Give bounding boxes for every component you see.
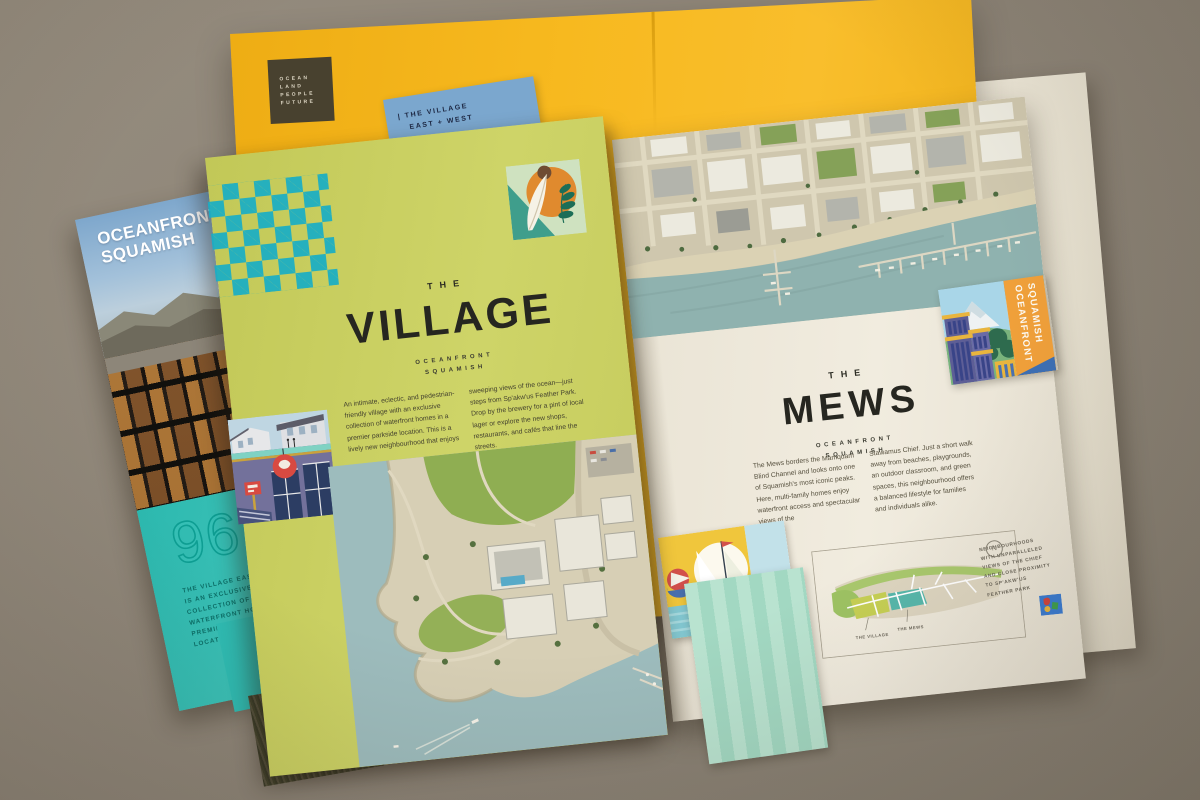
- feather-illustration: [506, 159, 587, 240]
- brand-logo-line: PEOPLE: [280, 90, 333, 98]
- folder-crease: [652, 12, 657, 132]
- logo-stamp: [1039, 594, 1063, 616]
- brand-logo-line: LAND: [280, 82, 333, 90]
- neighbourhood-card: OCEANFRONT SQUAMISH: [938, 275, 1058, 385]
- brochure-title: OCEANFRONT SQUAMISH: [96, 204, 226, 268]
- brand-logo-line: FUTURE: [281, 98, 334, 106]
- village-title-block: THE VILLAGE OCEANFRONT SQUAMISH: [322, 266, 581, 389]
- storefront-illustration: [228, 410, 338, 525]
- brand-logo: OCEAN LAND PEOPLE FUTURE: [267, 57, 334, 124]
- village-page: THE VILLAGE OCEANFRONT SQUAMISH An intim…: [205, 116, 668, 776]
- village-aerial-photo: [328, 434, 668, 767]
- checker-pattern: [206, 173, 339, 297]
- desk-surface: OCEAN LAND PEOPLE FUTURE | THE VILLAGE E…: [0, 0, 1200, 800]
- map-caption: Neighbourhoods with unparalleled views o…: [979, 534, 1057, 600]
- striped-pattern-card: [684, 567, 828, 764]
- brand-logo-line: OCEAN: [279, 74, 332, 82]
- mews-copy-col2: Stawamus Chief. Just a short walk away f…: [869, 438, 979, 516]
- mews-copy-col1: The Mews borders the Mamquam Blind Chann…: [752, 450, 862, 528]
